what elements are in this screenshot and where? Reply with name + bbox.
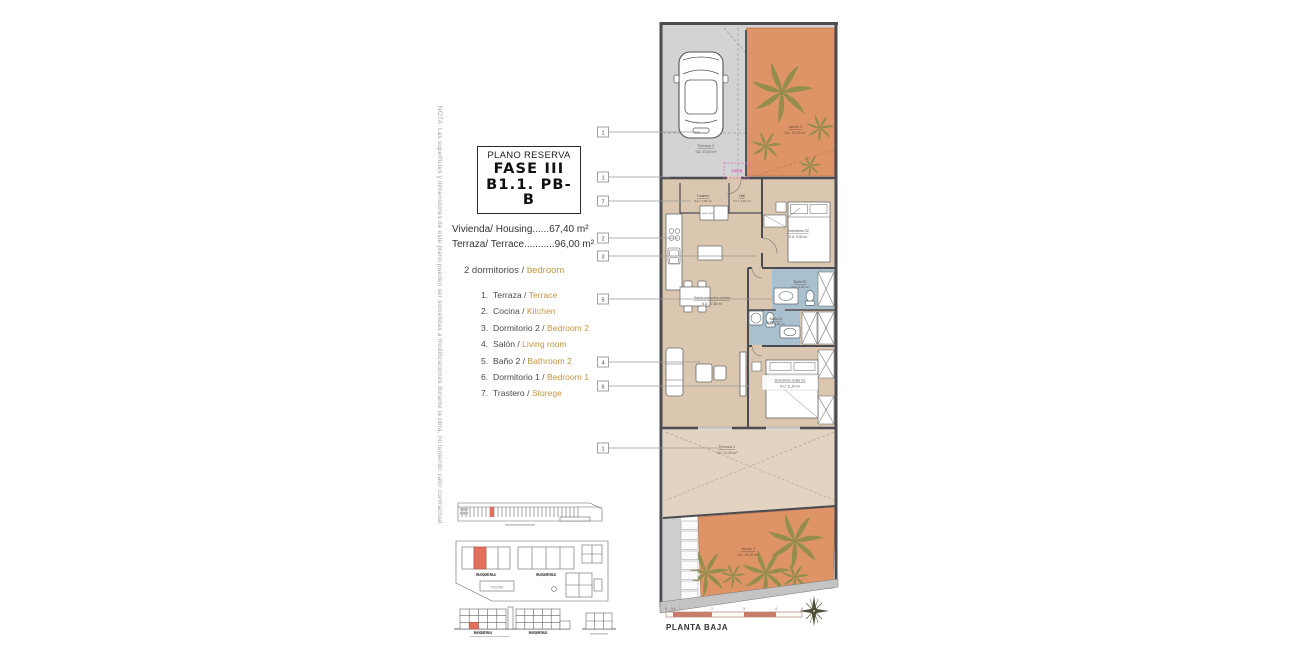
disclaimer-note: NOTA: Las superficies y dimensiones de e… (436, 106, 443, 566)
bano2-area: S.U: 4,20 m² (791, 285, 808, 289)
hall-name: Hall (739, 194, 745, 198)
legend-header-es: 2 dormitorios / (464, 265, 527, 276)
elevation-block2-label: BLOQUE B1.2 (529, 631, 548, 635)
legend-item-1: 1.Terraza / Terrace (481, 290, 589, 300)
planta-baja-caption: PLANTA BAJA (666, 623, 728, 632)
bano2-name: Baño 02 (794, 280, 807, 284)
dormitorio2-area: S.U: 9,30 m² (789, 235, 808, 239)
surface-summary: Vivienda/ Housing......67,40 m² Terraza/… (452, 223, 594, 252)
svg-text:1: 1 (601, 447, 604, 453)
svg-text:0: 0 (665, 607, 667, 611)
siteplan-highlighted-unit (474, 547, 486, 569)
jardin2-name: Jardín 2 (788, 124, 803, 129)
suite-area: S.U: 11,20 m² (780, 385, 801, 389)
svg-text:2: 2 (601, 237, 604, 243)
jardin1-name: Jardín 1 (741, 546, 756, 551)
legend-item-2: 2.Cocina / Kitchen (481, 306, 589, 316)
siteplan-ground-layout: BLOQUE B1.1 BLOQUE B1.2 PISCINA (456, 541, 608, 601)
title-plano-reserva: PLANO RESERVA (480, 150, 578, 161)
legend-item-7: 7.Trastero / Storege (481, 388, 589, 398)
bano1-name: Baño 01 (770, 317, 783, 321)
jardin1-area: SU: 19,00 m² (737, 553, 759, 557)
trastero-name: Trastero (697, 194, 710, 198)
salon-name: Salón-comedor-cocina (694, 296, 730, 300)
jardin2-area: SU: 20,00 m² (784, 131, 806, 135)
elevation-highlighted-unit (469, 622, 478, 629)
title-box: PLANO RESERVA FASE III B1.1. PB-B (477, 146, 581, 214)
entry-unit-code: PB-B (731, 169, 743, 174)
elevation-block1-label: BLOQUE B1.1 (474, 631, 493, 635)
title-fase: FASE III (480, 162, 578, 178)
garden-steps (681, 521, 698, 600)
legend-item-4: 4.Salón / Living room (481, 339, 589, 349)
housing-area-line: Vivienda/ Housing......67,40 m² (452, 223, 594, 238)
svg-text:6: 6 (601, 385, 604, 391)
svg-text:1: 1 (679, 607, 681, 611)
plano-reserva-sheet: NOTA: Las superficies y dimensiones de e… (0, 0, 1291, 650)
scale-bar: 0 0,5 1 2 3 4 5 PLANTA BAJA (665, 607, 803, 632)
floor-plan: PB-B LAVADORA (590, 14, 846, 640)
siteplan-block1-label: BLOQUE B1.1 (476, 573, 496, 577)
svg-text:7: 7 (601, 200, 604, 206)
salon-area: S.U: 27,80 m² (702, 302, 723, 306)
terraza1-area: SU: 31,00 m² (716, 451, 738, 455)
svg-text:2: 2 (711, 607, 713, 611)
legend-item-5: 5.Baño 2 / Bathroom 2 (481, 356, 589, 366)
garden-side-path (663, 517, 681, 604)
svg-text:3: 3 (743, 607, 745, 611)
dormitorio2-name: Dormitorio 02 (787, 229, 809, 233)
room-legend: 1.Terraza / Terrace 2.Cocina / Kitchen 3… (481, 290, 589, 405)
svg-text:4: 4 (601, 361, 604, 367)
siteplan-block2-label: BLOQUE B1.2 (536, 573, 556, 577)
pool-label: PISCINA (491, 586, 505, 590)
legend-header-en: bedroom (527, 265, 565, 276)
garage-highlighted-stall (490, 507, 494, 517)
bano1-area: S.U: 3,80 m² (767, 322, 784, 326)
svg-text:1: 1 (601, 176, 604, 182)
siteplan-garage-strip (458, 503, 602, 526)
svg-text:1: 1 (601, 131, 604, 137)
svg-text:0,5: 0,5 (671, 607, 676, 611)
car-top-view (674, 52, 728, 138)
svg-text:4: 4 (775, 607, 777, 611)
washing-machine-label: LAVADORA (701, 212, 713, 215)
suite-name: Dormitorio Suite 01 (775, 379, 806, 383)
legend-header: 2 dormitorios / bedroom (464, 265, 564, 276)
legend-item-6: 6.Dormitorio 1 / Bedroom 1 (481, 372, 589, 382)
hall-area: S.U: 1,15 m² (733, 199, 750, 203)
terrace-area-line: Terraza/ Terrace...........96,00 m² (452, 238, 594, 253)
compass-rose-icon (799, 596, 829, 626)
terraza2-area: SU: 23,00 m² (695, 150, 717, 154)
svg-text:3: 3 (601, 255, 604, 261)
legend-item-3: 3.Dormitorio 2 / Bedroom 2 (481, 323, 589, 333)
title-unit-code: B1.1. PB-B (480, 178, 578, 209)
trastero-area: S.U: 1,90 m² (694, 199, 711, 203)
terraza2-name: Terraza 2 (698, 143, 715, 148)
svg-text:5: 5 (601, 298, 604, 304)
